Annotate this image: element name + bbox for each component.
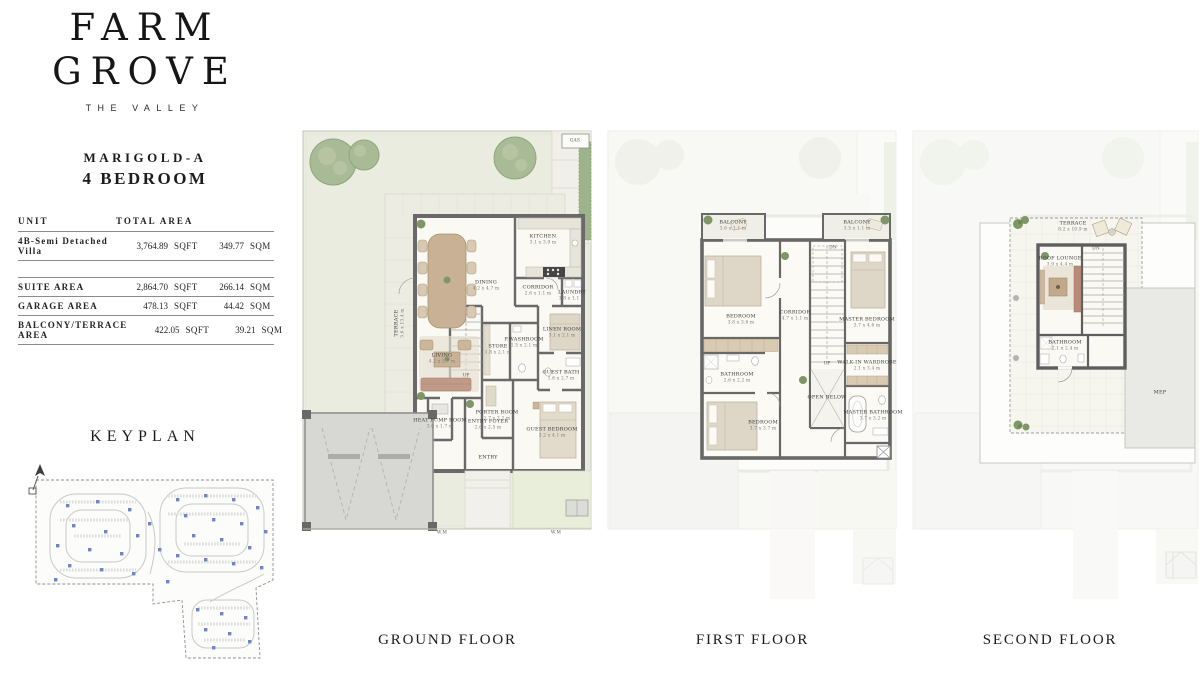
room-label-master-bedroom: MASTER BEDROOM3.7 x 4.6 m (839, 317, 895, 330)
row-sqm-unit: SQM (244, 282, 274, 292)
room-label-entry: ENTRY (478, 455, 497, 462)
room-label-linen-room: LINEN ROOM3.1 x 2.1 m (543, 327, 581, 340)
row-sqft-unit: SQFT (168, 301, 200, 311)
brand-line-2: GROVE (0, 50, 290, 94)
row-label: SUITE AREA (18, 282, 116, 292)
room-label-terrace: TERRACE3.6 x 13.4 m (394, 308, 407, 337)
brand-line-1: FARM (0, 6, 290, 50)
second-floor-plan: TERRACE8.2 x 10.9 m ROOF LOUNGE3.9 x 4.4… (910, 128, 1200, 623)
wm-label: W.M (437, 531, 447, 536)
table-row: 4B-Semi Detached Villa 3,764.89 SQFT 349… (18, 232, 274, 261)
room-label-master-bathroom: MASTER BATHROOM3.7 x 3.2 m (843, 410, 902, 423)
row-sqm-unit: SQM (244, 301, 274, 311)
row-label: GARAGE AREA (18, 301, 116, 311)
area-table: UNIT TOTAL AREA 4B-Semi Detached Villa 3… (18, 211, 274, 345)
room-label-walkin-wardrobe: WALK-IN WARDROBE2.1 x 3.4 m (837, 360, 896, 373)
first-floor-plan: BALCONY3.6 x 1.1 m BEDROOM3.8 x 3.6 m CO… (605, 128, 900, 623)
room-label-heat-pump-room: HEAT PUMP ROOM3.0 x 1.7 m (413, 418, 467, 431)
row-sqft: 422.05 (128, 325, 180, 335)
ground-floor-plan: TERRACE3.6 x 13.4 m DINING4.2 x 4.7 m KI… (300, 128, 595, 623)
row-sqm: 39.21 (212, 325, 256, 335)
col-unit: UNIT (18, 216, 116, 226)
room-label-entry-foyer: ENTRY FOYER2.6 x 2.5 m (468, 419, 508, 432)
row-label: 4B-Semi Detached Villa (18, 236, 116, 256)
caption-second-floor: SECOND FLOOR (905, 632, 1195, 649)
row-sqm: 44.42 (200, 301, 244, 311)
keyplan-map (8, 452, 283, 667)
keyplan-title: KEYPLAN (0, 428, 290, 446)
gas-label: GAS (570, 139, 580, 144)
room-label-mep: MEP (1154, 390, 1167, 397)
keyplan-boundary (36, 480, 273, 658)
unit-title: MARIGOLD-A 4 BEDROOM (0, 150, 290, 189)
room-label-guest-bedroom: GUEST BEDROOM3.2 x 4.1 m (526, 427, 577, 440)
caption-ground-floor: GROUND FLOOR (300, 632, 595, 649)
room-label-bathroom: BATHROOM2.1 x 2.4 m (1048, 340, 1081, 353)
brochure-page: FARM GROVE THE VALLEY MARIGOLD-A 4 BEDRO… (0, 0, 1200, 680)
table-spacer (18, 261, 274, 278)
room-label-pwashroom: P.WASHROOM1.5 x 2.1 m (504, 337, 543, 350)
room-label-balcony-right: BALCONY3.5 x 1.1 m (843, 220, 871, 233)
room-label-terrace: TERRACE8.2 x 10.9 m (1058, 221, 1087, 234)
row-sqft-unit: SQFT (180, 325, 212, 335)
room-label-dining: DINING4.2 x 4.7 m (473, 280, 499, 293)
brand-logo: FARM GROVE THE VALLEY (0, 6, 290, 113)
unit-name: MARIGOLD-A (0, 150, 290, 166)
unit-bedrooms: 4 BEDROOM (0, 169, 290, 189)
room-label-bedroom-2: BEDROOM3.7 x 3.7 m (748, 420, 778, 433)
room-label-bedroom-1: BEDROOM3.8 x 3.6 m (726, 314, 756, 327)
area-table-header: UNIT TOTAL AREA (18, 211, 274, 232)
room-label-roof-lounge: ROOF LOUNGE3.9 x 4.4 m (1039, 256, 1082, 269)
room-label-living: LIVING4.2 x 5.7 m (429, 353, 455, 366)
up-label: UP (823, 362, 830, 367)
room-label-laundry: LAUNDRY1.8 x 1.1 m (558, 290, 586, 303)
col-total-area: TOTAL AREA (116, 216, 274, 226)
room-label-open-below: OPEN BELOW (808, 395, 847, 402)
table-row: GARAGE AREA 478.13 SQFT 44.42 SQM (18, 297, 274, 316)
row-sqft: 3,764.89 (116, 241, 168, 251)
row-label: BALCONY/TERRACE AREA (18, 320, 128, 340)
brand-tagline: THE VALLEY (0, 103, 290, 113)
row-sqft: 2,864.70 (116, 282, 168, 292)
row-sqm-unit: SQM (244, 241, 274, 251)
row-sqft-unit: SQFT (168, 282, 200, 292)
row-sqft: 478.13 (116, 301, 168, 311)
room-label-bathroom: BATHROOM2.6 x 2.2 m (720, 372, 753, 385)
row-sqm: 349.77 (200, 241, 244, 251)
row-sqm: 266.14 (200, 282, 244, 292)
table-row: SUITE AREA 2,864.70 SQFT 266.14 SQM (18, 278, 274, 297)
room-label-corridor: CORRIDOR4.7 x 1.1 m (780, 310, 811, 323)
dn-label: DN (1092, 247, 1100, 252)
room-label-kitchen: KITCHEN3.1 x 3.9 m (530, 234, 557, 247)
row-sqm-unit: SQM (256, 325, 286, 335)
dn-label: DN (829, 246, 837, 251)
room-label-guest-bath: GUEST BATH1.6 x 2.7 m (543, 370, 580, 383)
room-label-balcony-left: BALCONY3.6 x 1.1 m (719, 220, 747, 233)
room-label-corridor: CORRIDOR2.6 x 1.1 m (523, 285, 554, 298)
up-label: UP (462, 374, 469, 379)
caption-first-floor: FIRST FLOOR (605, 632, 900, 649)
wm-label: W.M (551, 531, 561, 536)
table-row: BALCONY/TERRACE AREA 422.05 SQFT 39.21 S… (18, 316, 274, 345)
second-floor-drawing (910, 128, 1200, 623)
row-sqft-unit: SQFT (168, 241, 200, 251)
